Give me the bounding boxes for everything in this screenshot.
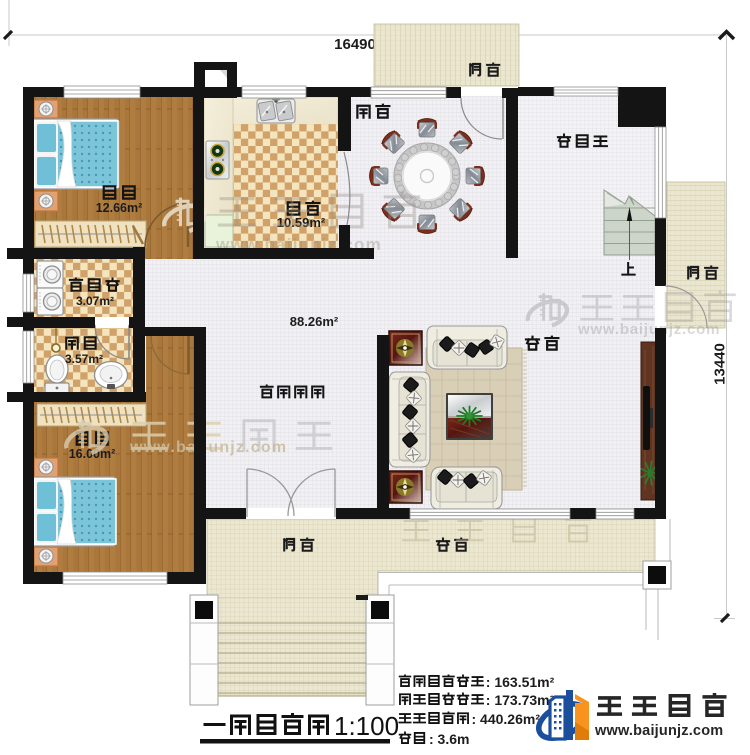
svg-text:: 163.51m²: : 163.51m² bbox=[486, 674, 555, 690]
svg-text:www.baijunjz.com: www.baijunjz.com bbox=[129, 439, 287, 456]
svg-text:www.baijunjz.com: www.baijunjz.com bbox=[594, 723, 723, 739]
svg-text:3.07m²: 3.07m² bbox=[76, 294, 114, 308]
svg-text:10.59m²: 10.59m² bbox=[277, 215, 326, 230]
svg-text:: 3.6m: : 3.6m bbox=[429, 731, 469, 747]
svg-text:www.baijunjz.com: www.baijunjz.com bbox=[577, 321, 720, 338]
svg-text:12.66m²: 12.66m² bbox=[96, 201, 143, 215]
svg-text:3.57m²: 3.57m² bbox=[65, 352, 103, 366]
svg-text:13440: 13440 bbox=[712, 343, 729, 385]
svg-text:1:100: 1:100 bbox=[334, 711, 399, 741]
svg-text:: 173.73m²: : 173.73m² bbox=[486, 692, 555, 708]
svg-text:: 440.26m²: : 440.26m² bbox=[472, 711, 541, 727]
svg-text:16490: 16490 bbox=[334, 36, 376, 53]
svg-text:88.26m²: 88.26m² bbox=[290, 314, 339, 329]
